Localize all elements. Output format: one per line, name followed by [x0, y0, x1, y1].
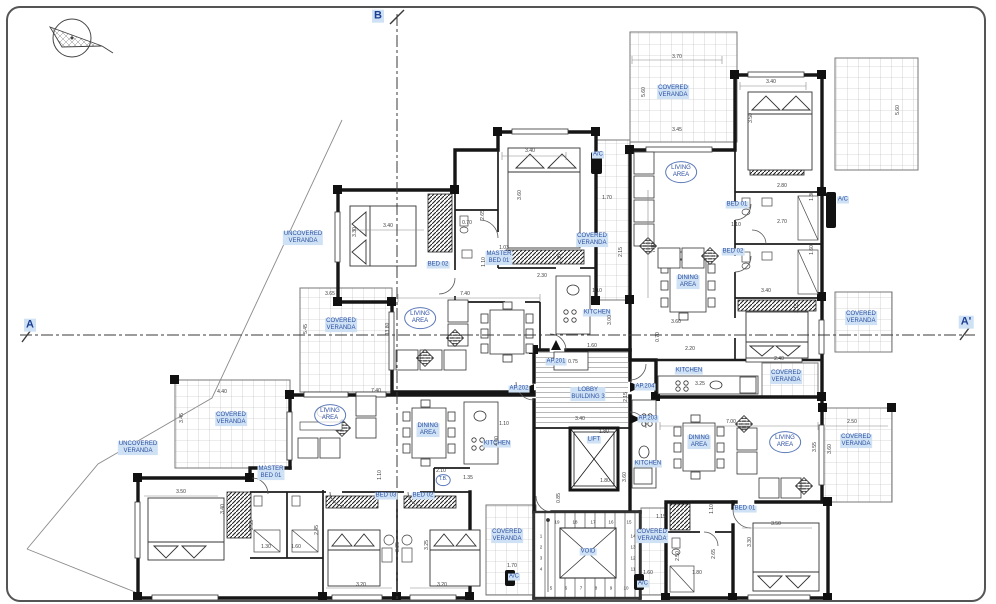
dimension-label: 3.00	[607, 315, 613, 325]
dimension-label: 3.40	[383, 223, 393, 229]
room-label: COVEREDVERANDA	[845, 311, 877, 325]
ac-label: A/C	[592, 152, 604, 159]
stair-tread-number: 1	[540, 534, 543, 539]
dimension-label: 0.75	[568, 359, 578, 365]
stair-tread-number: 13	[630, 545, 635, 550]
area-label: LIVINGAREA	[665, 161, 697, 183]
room-label: BED 01	[726, 202, 749, 209]
dimension-label: 2.15	[623, 392, 629, 402]
room-label: BED 02	[722, 249, 745, 256]
dimension-label: 3.15	[794, 303, 800, 313]
stair-tread-number: 11	[631, 567, 636, 572]
dimension-label: 3.70	[672, 54, 682, 60]
room-label: MASTERBED 01	[257, 466, 284, 480]
dimension-label: 7.40	[460, 291, 470, 297]
dimension-label: 3.20	[437, 582, 447, 588]
room-label: DININGAREA	[677, 275, 700, 289]
dimension-label: 7.40	[371, 388, 381, 394]
dimension-label: 2.40	[774, 356, 784, 362]
ac-label: A/C	[508, 574, 520, 581]
area-label: LIVINGAREA	[404, 307, 436, 329]
stair-tread-number: 18	[572, 520, 577, 525]
room-label: DININGAREA	[688, 435, 711, 449]
room-label: COVEREDVERANDA	[491, 529, 523, 543]
dimension-label: 2.65	[480, 210, 486, 220]
room-label: BED 02	[412, 493, 435, 500]
dimension-label: 0.70	[655, 332, 661, 342]
area-label: LIVINGAREA	[769, 431, 801, 453]
dimension-label: 3.40	[525, 148, 535, 154]
dimension-label: 2.30	[537, 273, 547, 279]
dimension-label: 3.60	[671, 319, 681, 325]
apartment-door-label: AP.204	[635, 384, 656, 391]
dimension-label: 5.60	[895, 105, 901, 115]
room-label: COVEREDVERANDA	[840, 434, 872, 448]
dimension-label: 3.60	[622, 472, 628, 482]
dimension-label: 1.60	[291, 544, 301, 550]
dimension-label: 1.10	[499, 421, 509, 427]
room-label: COVEREDVERANDA	[636, 529, 668, 543]
room-label: UNCOVEREDVERANDA	[283, 231, 323, 245]
dimension-label: 3.60	[827, 444, 833, 454]
stair-tread-number: 9	[610, 586, 613, 591]
stair-tread-number: 14	[630, 534, 635, 539]
dimension-label: 2.20	[685, 346, 695, 352]
area-label: LIVINGAREA	[314, 404, 346, 426]
dimension-label: 1.10	[592, 288, 602, 294]
dimension-label: 1.70	[602, 195, 612, 201]
dimension-label: 3.65	[325, 291, 335, 297]
dimension-label: 1.03	[499, 245, 509, 251]
stair-tread-number: 5	[550, 586, 553, 591]
dimension-label: 1.35	[557, 254, 563, 264]
dimension-label: 1.35	[463, 475, 473, 481]
fixture-label: T.B.	[436, 474, 451, 486]
dimension-label: 0.70	[462, 220, 472, 226]
floor-plan-page: COVEREDVERANDALIVINGAREABED 01BED 02DINI…	[0, 0, 996, 604]
dimension-label: 3.55	[812, 442, 818, 452]
dimension-label: 1.80	[600, 478, 610, 484]
room-label: DININGAREA	[417, 423, 440, 437]
stair-tread-number: 3	[540, 556, 543, 561]
dimension-label: 1.10	[481, 257, 487, 267]
dimension-label: 1.30	[261, 544, 271, 550]
dimension-label: 2.65	[711, 549, 717, 559]
stair-tread-number: 4	[540, 567, 543, 572]
dimension-label: 3.30	[747, 537, 753, 547]
ac-label: A/C	[637, 581, 649, 588]
room-label: UNCOVEREDVERANDA	[118, 441, 158, 455]
ac-label: A/C	[837, 197, 849, 204]
dimension-label: 3.30	[352, 227, 358, 237]
stair-tread-number: 8	[595, 586, 598, 591]
stair-tread-number: 15	[626, 520, 631, 525]
dimension-label: 4.00	[494, 436, 500, 446]
room-label: BED 02	[427, 262, 450, 269]
dimension-label: 3.60	[517, 190, 523, 200]
stair-tread-number: 17	[590, 520, 595, 525]
dimension-label: 3.45	[179, 413, 185, 423]
room-label: COVEREDVERANDA	[770, 370, 802, 384]
dimension-label: 1.30	[809, 191, 815, 201]
dimension-label: 1.70	[507, 563, 517, 569]
room-label: COVEREDVERANDA	[576, 233, 608, 247]
dimension-label: 3.45	[672, 127, 682, 133]
stair-tread-number: 10	[623, 586, 628, 591]
dimension-label: 2.70	[777, 219, 787, 225]
room-label: BED 01	[734, 506, 757, 513]
dimension-label: 3.50	[176, 489, 186, 495]
dimension-label: 5.45	[303, 324, 309, 334]
dimension-label: 2.15	[618, 247, 624, 257]
dimension-label: 7.00	[726, 419, 736, 425]
dimension-label: 0.85	[556, 493, 562, 503]
core-label: VOID	[580, 549, 597, 556]
room-label: COVEREDVERANDA	[657, 85, 689, 99]
dimension-label: 2.55	[249, 520, 255, 530]
room-label: KITCHEN	[675, 368, 703, 375]
dimension-label: 3.40	[766, 79, 776, 85]
dimension-label: 1.60	[809, 245, 815, 255]
dimension-label: 7.40	[651, 243, 657, 253]
dimension-label: 3.40	[575, 416, 585, 422]
dimension-label: 3.40	[220, 504, 226, 514]
room-label: COVEREDVERANDA	[215, 412, 247, 426]
stair-tread-number: 16	[608, 520, 613, 525]
dimension-label: 3.50	[748, 113, 754, 123]
apartment-door-label: AP.203	[638, 416, 659, 423]
stair-tread-number: 19	[554, 520, 559, 525]
dimension-label: 1.60	[587, 343, 597, 349]
stair-tread-number: 6	[565, 586, 568, 591]
section-marker: A	[24, 319, 36, 332]
dimension-label: 2.50	[675, 551, 681, 561]
dimension-label: 1.80	[692, 570, 702, 576]
room-label: COVEREDVERANDA	[325, 318, 357, 332]
room-label: BED 03	[375, 493, 398, 500]
stair-tread-number: 7	[580, 586, 583, 591]
dimension-label: 3.20	[356, 582, 366, 588]
dimension-label: 5.60	[641, 87, 647, 97]
dimension-label: 2.10	[436, 468, 446, 474]
apartment-door-label: AP.201	[546, 359, 567, 366]
section-marker: B	[372, 10, 384, 23]
room-label: KITCHEN	[634, 461, 662, 468]
dimension-label: 3.25	[424, 540, 430, 550]
dimension-label: 2.45	[314, 525, 320, 535]
dimension-label: 1.60	[643, 570, 653, 576]
dimension-label: 2.50	[847, 419, 857, 425]
section-marker: A'	[959, 316, 974, 329]
apartment-door-label: AP.202	[509, 386, 530, 393]
dimension-label: 1.10	[377, 470, 383, 480]
text-overlay: COVEREDVERANDALIVINGAREABED 01BED 02DINI…	[0, 0, 996, 604]
dimension-label: 1.80	[599, 429, 609, 435]
stair-tread-number: 12	[630, 556, 635, 561]
room-label: MASTERBED 01	[485, 251, 512, 265]
dimension-label: 2.80	[777, 183, 787, 189]
core-label: LIFT	[587, 437, 601, 444]
stair-tread-number: 2	[540, 545, 543, 550]
dimension-label: 1.15	[656, 514, 666, 520]
dimension-label: 3.40	[761, 288, 771, 294]
dimension-label: 3.50	[771, 521, 781, 527]
core-label: LOBBYBUILDING 3	[570, 387, 605, 401]
dimension-label: 1.10	[731, 222, 741, 228]
dimension-label: 4.40	[217, 389, 227, 395]
dimension-label: 1.10	[709, 504, 715, 514]
dimension-label: 3.25	[695, 381, 705, 387]
dimension-label: 3.25	[395, 542, 401, 552]
dimension-label: 13.80	[385, 323, 391, 336]
